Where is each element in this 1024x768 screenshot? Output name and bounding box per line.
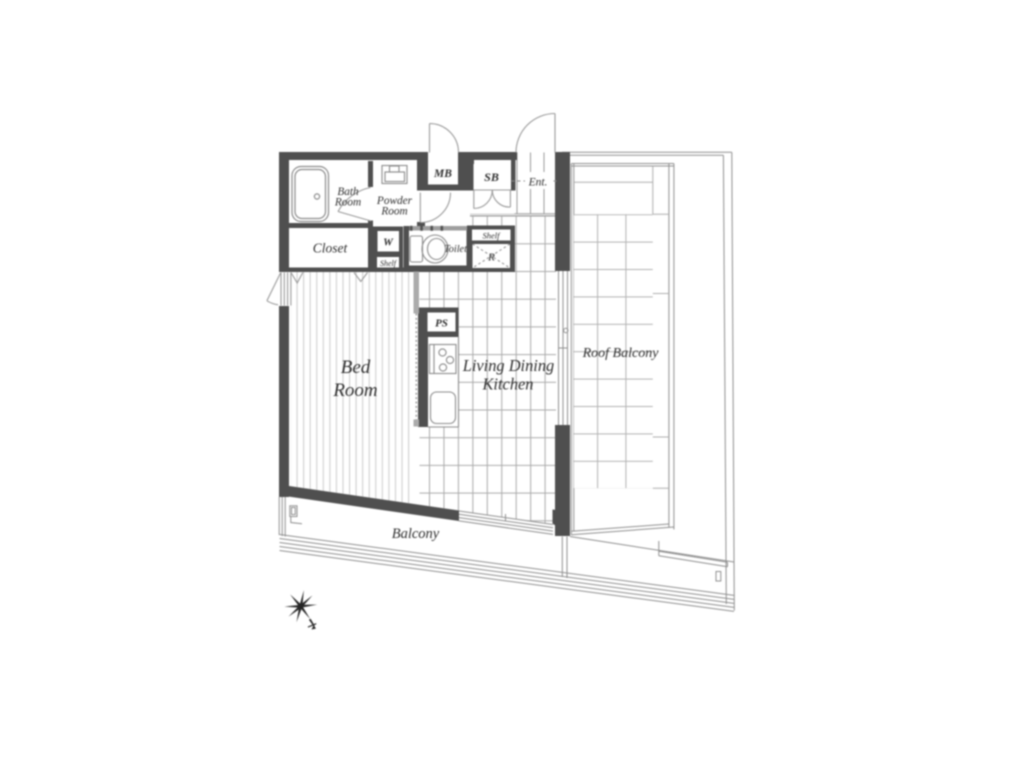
svg-text:W: W — [383, 237, 394, 249]
svg-text:Room: Room — [334, 197, 361, 209]
svg-text:Closet: Closet — [313, 241, 349, 256]
svg-text:Room: Room — [380, 206, 407, 218]
svg-text:MB: MB — [433, 168, 452, 180]
svg-text:Shelf: Shelf — [380, 259, 398, 268]
svg-text:Ent.: Ent. — [528, 177, 548, 189]
svg-text:R: R — [487, 252, 495, 264]
svg-text:Balcony: Balcony — [392, 526, 440, 542]
svg-text:Living Dining: Living Dining — [462, 356, 555, 375]
svg-text:Roof Balcony: Roof Balcony — [582, 346, 660, 361]
svg-text:PS: PS — [435, 318, 448, 330]
svg-text:Bed: Bed — [341, 357, 371, 378]
svg-text:Toilet: Toilet — [444, 244, 468, 255]
svg-text:Shelf: Shelf — [483, 231, 502, 241]
svg-text:Room: Room — [332, 380, 377, 401]
svg-text:Kitchen: Kitchen — [482, 375, 534, 394]
svg-text:SB: SB — [484, 170, 499, 184]
